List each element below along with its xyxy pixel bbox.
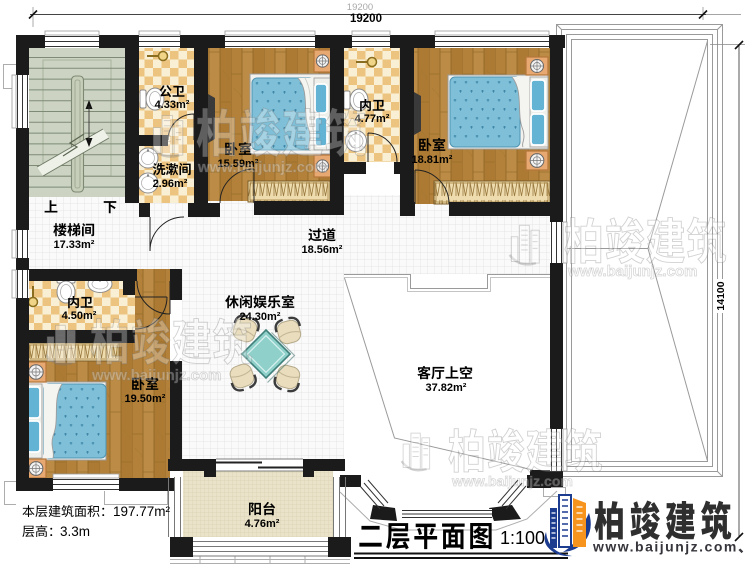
- svg-text:1:100: 1:100: [500, 528, 545, 548]
- svg-text:www.baijunjz.com: www.baijunjz.com: [451, 473, 573, 489]
- svg-text:17.33m²: 17.33m²: [54, 239, 95, 251]
- svg-text:www.baijunjz.com: www.baijunjz.com: [592, 539, 738, 555]
- svg-text:197.77m²: 197.77m²: [113, 504, 171, 519]
- svg-text:www.baijunjz.com: www.baijunjz.com: [567, 263, 697, 280]
- svg-text:37.82m²: 37.82m²: [426, 382, 467, 394]
- svg-text:19200: 19200: [347, 2, 373, 13]
- svg-text:19.50m²: 19.50m²: [125, 393, 166, 405]
- svg-text:2.96m²: 2.96m²: [153, 178, 188, 190]
- svg-text:4.33m²: 4.33m²: [155, 99, 190, 111]
- svg-text:19200: 19200: [350, 13, 382, 25]
- svg-text:18.56m²: 18.56m²: [302, 244, 343, 256]
- svg-text:www.baijunjz.com: www.baijunjz.com: [197, 159, 327, 176]
- svg-text:4.76m²: 4.76m²: [245, 518, 280, 530]
- svg-text:3.3m: 3.3m: [60, 524, 90, 539]
- svg-text:www.baijunjz.com: www.baijunjz.com: [91, 367, 221, 384]
- svg-text:14100: 14100: [715, 281, 727, 310]
- svg-text:24.30m²: 24.30m²: [240, 311, 281, 323]
- svg-text:4.50m²: 4.50m²: [62, 310, 97, 322]
- svg-text:18.81m²: 18.81m²: [412, 154, 453, 166]
